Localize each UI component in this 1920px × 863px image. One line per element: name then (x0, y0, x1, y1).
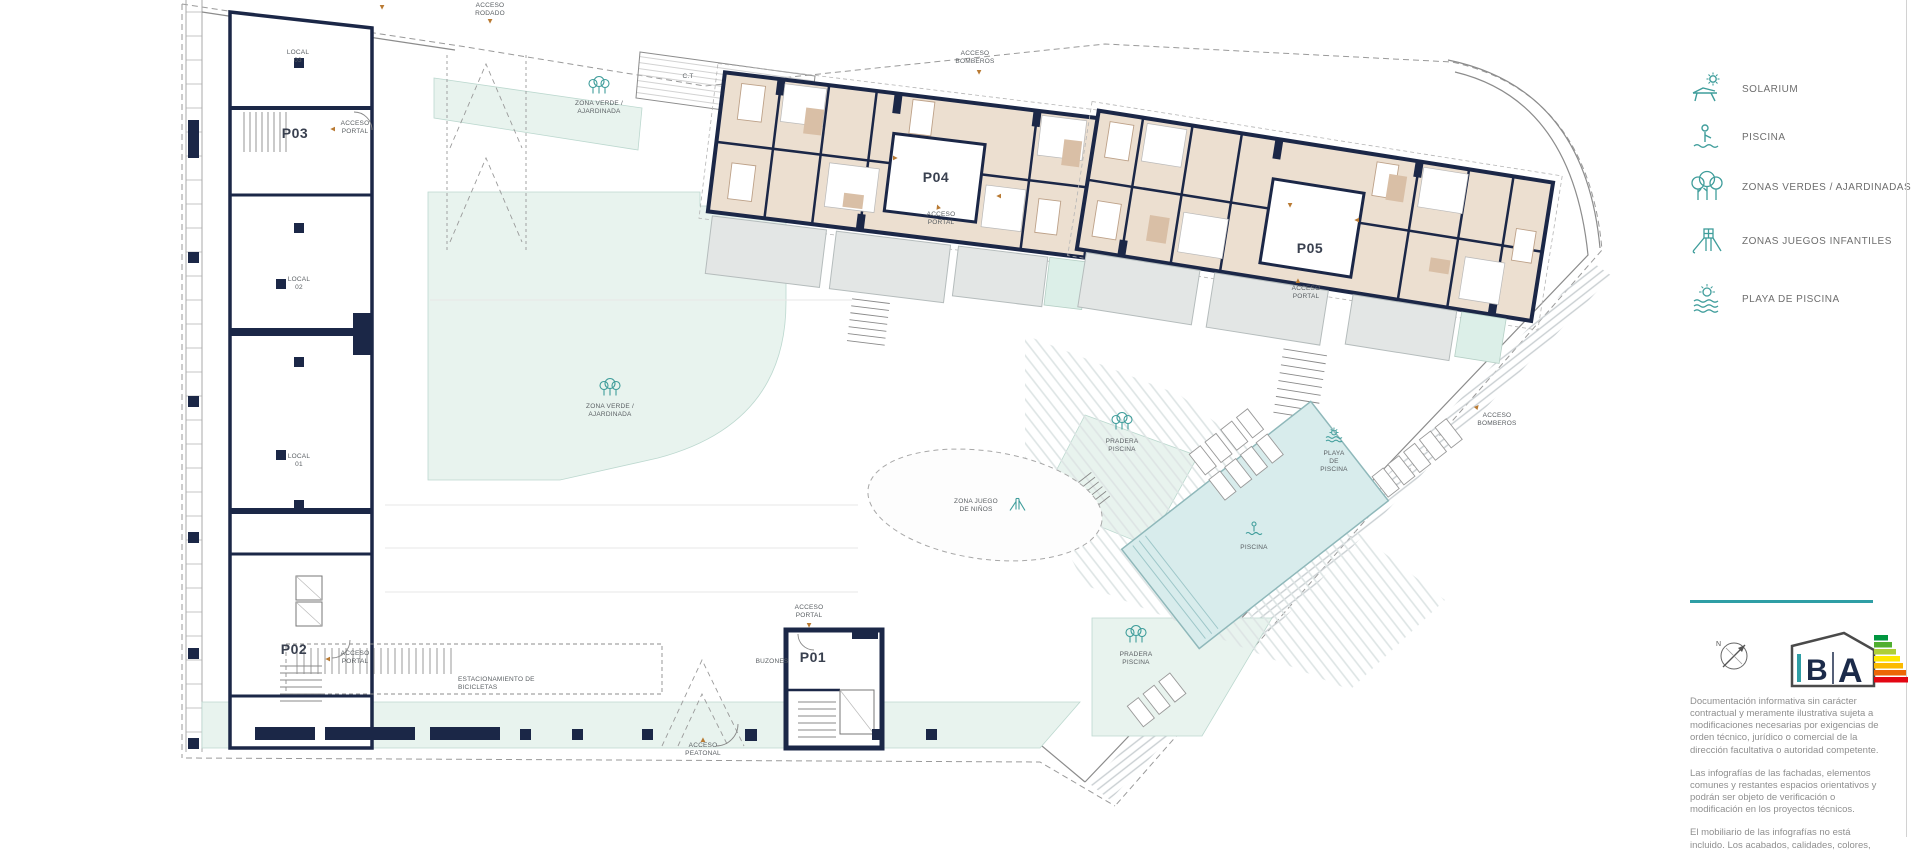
floor-plan-page: ACCESO RODADO ACCESO BOMBEROS C.T ZONA V… (0, 0, 1920, 837)
legend-item-zonas-verdes: ZONAS VERDES / AJARDINADAS (1688, 168, 1911, 206)
label-p01: P01 (800, 649, 826, 665)
disclaimer-text: Documentación informativa sin carácter c… (1690, 696, 1888, 863)
access-arrow-icon: ▲ (1353, 216, 1361, 224)
legend-label: ZONAS VERDES / AJARDINADAS (1742, 182, 1911, 193)
trees-icon (1123, 625, 1149, 650)
label-local-03: LOCAL 03 (287, 49, 309, 65)
access-arrow-icon: ▲ (805, 621, 813, 629)
page-right-border (1906, 0, 1907, 837)
legend-label: SOLARIUM (1742, 84, 1798, 95)
label-acceso-portal-p03: ACCESO PORTAL (341, 120, 370, 136)
compass-north-label: N (1716, 641, 1721, 648)
trees-icon (597, 378, 623, 403)
label-p02: P02 (281, 641, 307, 657)
label-p03: P03 (282, 125, 308, 141)
label-acceso-portal-p05: ACCESO PORTAL (1292, 285, 1321, 301)
label-estacionamiento: ESTACIONAMIENTO DE BICICLETAS (458, 676, 535, 692)
p01-block (786, 630, 882, 748)
access-arrow-icon: ▲ (324, 655, 332, 663)
label-acceso-bomberos-right: ACCESO BOMBEROS (1477, 412, 1516, 428)
energy-letter-a: A (1838, 652, 1863, 690)
legend-item-zonas-juegos: ZONAS JUEGOS INFANTILES (1688, 222, 1892, 260)
access-arrow-icon: ▲ (1294, 277, 1302, 285)
label-acceso-portal-p01: ACCESO PORTAL (795, 604, 824, 620)
legend-item-piscina: PISCINA (1688, 118, 1786, 156)
label-p05: P05 (1297, 240, 1323, 256)
left-sidewalk (186, 0, 202, 752)
label-buzones: BUZONES (756, 658, 789, 666)
energy-bars (1874, 635, 1908, 683)
sun-waves-icon (1688, 280, 1726, 318)
slide-icon (1688, 222, 1726, 260)
trees-icon (1688, 168, 1726, 206)
access-arrow-icon: ▲ (995, 192, 1003, 200)
solarium-icon (1688, 70, 1726, 108)
disclaimer-paragraph: Las infografías de las fachadas, element… (1690, 768, 1888, 817)
access-arrow-icon: ▲ (699, 736, 707, 744)
label-acceso-portal-p04: ACCESO PORTAL (927, 211, 956, 227)
label-zona-verde-main: ZONA VERDE / AJARDINADA (586, 403, 634, 419)
legend-label: PISCINA (1742, 132, 1786, 143)
trees-icon (1109, 412, 1135, 437)
label-ct: C.T (682, 73, 693, 81)
energy-rating-logo: B A (1778, 626, 1908, 697)
label-local-02: LOCAL 02 (288, 276, 310, 292)
disclaimer-paragraph: El mobiliario de las infografías no está… (1690, 827, 1888, 851)
slide-icon (1007, 496, 1027, 519)
divider-line (1690, 600, 1873, 603)
legend-label: ZONAS JUEGOS INFANTILES (1742, 236, 1892, 247)
swimmer-icon (1688, 118, 1726, 156)
swimmer-icon (1245, 521, 1263, 542)
legend-item-playa-piscina: PLAYA DE PISCINA (1688, 280, 1840, 318)
label-local-01: LOCAL 01 (288, 453, 310, 469)
label-playa-piscina: PLAYA DE PISCINA (1320, 450, 1347, 474)
label-acceso-portal-p02: ACCESO PORTAL (341, 650, 370, 666)
label-pradera-piscina-1: PRADERA PISCINA (1106, 438, 1139, 454)
energy-letter-b: B (1806, 654, 1828, 687)
label-pradera-piscina-2: PRADERA PISCINA (1120, 651, 1153, 667)
label-acceso-peatonal: ACCESO PEATONAL (685, 742, 721, 758)
access-arrow-icon: ▲ (378, 3, 386, 11)
label-zona-juego: ZONA JUEGO DE NIÑOS (954, 498, 998, 514)
access-arrow-icon: ▲ (891, 154, 899, 162)
label-p04: P04 (923, 169, 949, 185)
label-acceso-rodado: ACCESO RODADO (475, 2, 505, 18)
access-arrow-icon: ▲ (1286, 201, 1294, 209)
label-piscina: PISCINA (1240, 544, 1267, 552)
disclaimer-paragraph: Documentación informativa sin carácter c… (1690, 696, 1888, 757)
label-acceso-bomberos-top: ACCESO BOMBEROS (955, 50, 994, 66)
trees-icon (586, 76, 612, 101)
access-arrow-icon: ▲ (486, 17, 494, 25)
label-zona-verde-top: ZONA VERDE / AJARDINADA (575, 100, 623, 116)
sun-waves-icon (1324, 427, 1344, 450)
access-arrow-icon: ▲ (329, 125, 337, 133)
access-arrow-icon: ▲ (975, 68, 983, 76)
legend-label: PLAYA DE PISCINA (1742, 294, 1840, 305)
compass-icon: N (1712, 634, 1754, 681)
legend-item-solarium: SOLARIUM (1688, 70, 1798, 108)
